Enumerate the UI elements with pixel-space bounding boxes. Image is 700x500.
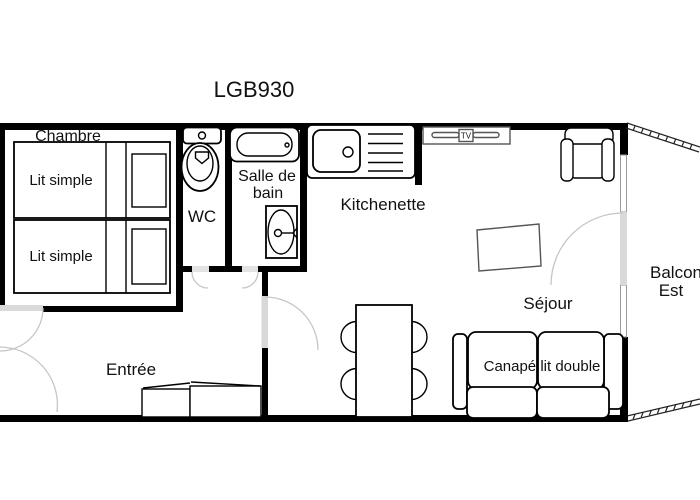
balcony-railing-top	[626, 123, 700, 152]
window-right-lower	[621, 285, 627, 337]
wardrobe-left	[142, 389, 190, 417]
sdb-label-line2: bain	[253, 185, 283, 202]
entree-room: Entrée	[106, 360, 261, 417]
tv-stand-icon: TV	[423, 127, 510, 144]
tv-stand-right-bar	[473, 133, 499, 138]
kitchen-drain	[343, 147, 353, 157]
sofa-label: Canapé lit double	[484, 358, 601, 375]
wardrobe-right	[190, 386, 261, 417]
sofa-left-arm	[453, 334, 467, 409]
floor-plan-svg: LGB930 Chambre	[0, 0, 700, 500]
bed1-label: Lit simple	[29, 172, 92, 189]
bed2-label: Lit simple	[29, 248, 92, 265]
wc-label: WC	[188, 207, 216, 226]
entry-door-arc	[0, 347, 57, 412]
balcony-door-leaf	[620, 212, 627, 285]
washbasin-icon	[266, 206, 297, 258]
wall-sdb-kitchen	[300, 123, 307, 272]
bathtub-inner	[237, 133, 292, 156]
wardrobe-door-line-1	[143, 383, 190, 388]
bed1-pillow	[132, 154, 166, 207]
window-right-upper	[621, 155, 627, 212]
sdb-door-arc	[242, 272, 258, 288]
sofa-seat-cushion-2	[537, 387, 609, 418]
sdb-label-line1: Salle de	[238, 168, 296, 185]
chambre-door-arc	[0, 308, 43, 351]
floor-plan-page: LGB930 Chambre	[0, 0, 700, 500]
armchair-seat	[571, 142, 604, 178]
chambre-door-leaf	[0, 305, 43, 311]
bathtub-icon	[230, 128, 299, 162]
armchair-left-arm	[561, 139, 573, 181]
sofa-bed-icon: Canapé lit double	[453, 332, 623, 418]
balcon-label-line1: Balcon	[650, 263, 700, 282]
salle-de-bain-room: Salle de bain	[230, 128, 299, 259]
chambre-room: Chambre Lit simple Lit simple	[14, 128, 170, 293]
kitchenette-label: Kitchenette	[340, 195, 425, 214]
balcony-railing-bottom	[627, 399, 700, 421]
bed2-pillow	[132, 229, 166, 284]
sejour-door-leaf	[262, 296, 269, 348]
wc-room: WC	[182, 128, 222, 227]
kitchen-sink-icon	[307, 125, 415, 178]
bed-single-2: Lit simple	[14, 220, 170, 293]
wc-door-arc	[192, 272, 208, 288]
wall-left	[0, 123, 5, 311]
toilet-button	[199, 132, 206, 139]
dining-set	[341, 305, 427, 417]
toilet-icon	[182, 128, 222, 192]
wall-kitchen-stub	[415, 123, 422, 185]
toilet-bowl-inner	[187, 146, 213, 181]
armchair-right-arm	[602, 139, 614, 181]
washbasin-drain	[275, 230, 282, 237]
wall-chambre-bottom	[43, 306, 183, 312]
tv-stand-left-bar	[432, 133, 459, 138]
balcon-label-line2: Est	[659, 281, 684, 300]
wall-entree-sejour-upper	[262, 266, 268, 297]
coffee-table	[477, 224, 541, 271]
wall-entree-sejour-lower	[262, 348, 268, 421]
balcon: Balcon Est	[626, 123, 700, 421]
page-title: LGB930	[214, 77, 295, 102]
kitchenette-room: Kitchenette	[307, 125, 426, 214]
balcony-door-arc	[551, 213, 623, 285]
sofa-seat-cushion-1	[467, 387, 537, 418]
wall-wc-bottom-mid	[209, 266, 242, 272]
bed-single-1: Lit simple	[14, 142, 170, 218]
wall-chambre-wc	[176, 123, 183, 312]
armchair-icon	[561, 128, 614, 181]
tv-label: TV	[461, 132, 472, 141]
wc-door-opening	[192, 266, 209, 272]
wardrobe-icon	[142, 382, 261, 417]
entree-label: Entrée	[106, 360, 156, 379]
sejour-label: Séjour	[523, 294, 572, 313]
sdb-door-opening	[242, 266, 258, 272]
dining-table	[356, 305, 412, 417]
wall-wc-bottom-left	[176, 266, 192, 272]
sejour-door-arc	[265, 297, 318, 350]
